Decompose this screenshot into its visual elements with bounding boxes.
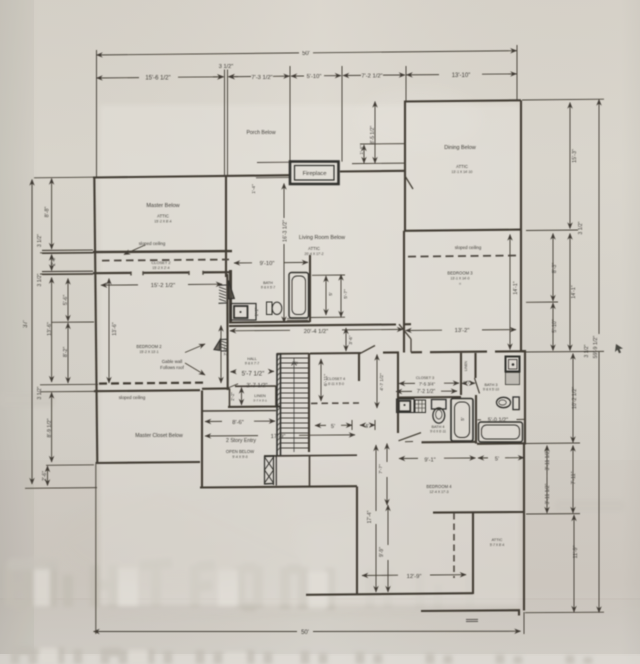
svg-text:7'-2 1/2": 7'-2 1/2" [417, 389, 436, 395]
svg-text:5'-6": 5'-6" [63, 295, 69, 305]
svg-text:BEDROOM 2: BEDROOM 2 [136, 344, 162, 349]
svg-text:1'-7": 1'-7" [463, 380, 472, 385]
svg-text:2'-2": 2'-2" [230, 392, 235, 401]
svg-text:20'-4 X 17'-2: 20'-4 X 17'-2 [304, 252, 323, 256]
svg-text:7'-2": 7'-2" [223, 346, 229, 356]
svg-text:CLOSET 4: CLOSET 4 [327, 377, 345, 381]
svg-text:9'-6 X 5'-10: 9'-6 X 5'-10 [483, 388, 499, 392]
svg-text:13'-1 X 14'-0: 13'-1 X 14'-0 [450, 277, 469, 281]
svg-text:11'-9": 11'-9" [573, 545, 579, 558]
svg-text:2'-6": 2'-6" [51, 256, 57, 266]
svg-text:4'-7 1/2": 4'-7 1/2" [379, 373, 385, 391]
svg-text:3'-7 1/2": 3'-7 1/2" [246, 383, 267, 389]
svg-text:Dining Below: Dining Below [444, 145, 476, 151]
svg-text:9'-6 X 5'-7: 9'-6 X 5'-7 [261, 286, 276, 290]
svg-text:9'-1": 9'-1" [424, 458, 435, 464]
svg-text:ATTIC: ATTIC [492, 538, 503, 542]
svg-text:3'-11 1/2": 3'-11 1/2" [545, 449, 551, 470]
svg-text:15'-2 X 13'-1: 15'-2 X 13'-1 [139, 350, 158, 354]
svg-text:15'-3": 15'-3" [572, 149, 578, 163]
svg-text:17'-9": 17'-9" [271, 434, 286, 440]
svg-text:ATTIC: ATTIC [456, 164, 468, 169]
svg-text:Porch Below: Porch Below [246, 130, 275, 136]
svg-text:15'-2 1/2": 15'-2 1/2" [151, 283, 175, 289]
svg-text:5': 5' [328, 292, 334, 296]
svg-text:ATTIC: ATTIC [157, 214, 169, 219]
svg-text:3'-11 1/2": 3'-11 1/2" [545, 483, 551, 504]
svg-text:BATH: BATH [263, 281, 273, 285]
svg-text:5'-7 1/2": 5'-7 1/2" [242, 370, 265, 377]
svg-text:9'-10": 9'-10" [260, 261, 275, 267]
svg-text:5': 5' [460, 417, 465, 421]
svg-text:17'-4": 17'-4" [367, 510, 373, 523]
svg-text:5'-0 1/2": 5'-0 1/2" [488, 417, 508, 423]
svg-text:sloped ceiling: sloped ceiling [119, 395, 146, 400]
svg-text:1'-4": 1'-4" [251, 184, 257, 194]
svg-text:3 1/2": 3 1/2" [584, 344, 590, 357]
svg-text:13'-6": 13'-6" [47, 322, 53, 336]
svg-text:LINEN: LINEN [254, 393, 266, 398]
svg-text:13'-10": 13'-10" [452, 73, 471, 79]
svg-text:12'-9": 12'-9" [407, 574, 422, 580]
svg-text:9'-9": 9'-9" [379, 547, 385, 557]
svg-text:HALL: HALL [247, 357, 257, 361]
svg-text:15'-2 X 8'-4: 15'-2 X 8'-4 [154, 220, 171, 224]
svg-text:16'-3 1/2": 16'-3 1/2" [283, 220, 289, 242]
svg-text:7'-3 1/2": 7'-3 1/2" [251, 75, 272, 81]
svg-text:8'-5 1/2": 8'-5 1/2" [370, 126, 376, 145]
svg-text:8'-3": 8'-3" [552, 263, 558, 273]
svg-text:8'-8": 8'-8" [45, 207, 51, 218]
svg-text:3 1/2": 3 1/2" [219, 64, 233, 70]
svg-text:Living Room Below: Living Room Below [299, 235, 345, 241]
svg-text:8'-6": 8'-6" [232, 420, 244, 426]
svg-text:8'-2": 8'-2" [63, 347, 69, 357]
svg-text:10'-2 1/2": 10'-2 1/2" [572, 387, 578, 409]
svg-text:3 1/2": 3 1/2" [578, 221, 584, 234]
svg-text:8'-9 1/2": 8'-9 1/2" [47, 418, 53, 437]
svg-text:13'-2": 13'-2" [455, 328, 470, 334]
svg-text:14'-1": 14'-1" [513, 281, 519, 294]
svg-text:Fireplace: Fireplace [303, 171, 327, 177]
svg-text:7'-11": 7'-11" [571, 471, 577, 484]
svg-text:Gable wall: Gable wall [162, 359, 183, 364]
svg-text:6'-11 X 5'-0: 6'-11 X 5'-0 [328, 382, 344, 386]
svg-text:BATH 3: BATH 3 [484, 383, 497, 387]
svg-text:20'-4 1/2": 20'-4 1/2" [304, 329, 328, 335]
svg-text:5'-7": 5'-7" [343, 289, 349, 299]
svg-text:3 1/2": 3 1/2" [37, 273, 43, 286]
svg-text:4': 4' [365, 424, 369, 430]
svg-text:Master Closet Below: Master Closet Below [135, 433, 183, 439]
svg-text:LINEN: LINEN [464, 360, 468, 371]
svg-text:5': 5' [331, 424, 335, 430]
svg-text:13'-6": 13'-6" [112, 322, 118, 335]
svg-text:2'-6": 2'-6" [42, 471, 48, 481]
svg-text:OPEN BELOW: OPEN BELOW [226, 449, 254, 454]
svg-text:5'-10": 5'-10" [552, 319, 558, 332]
svg-text:Master Below: Master Below [146, 203, 179, 209]
svg-text:ATTIC: ATTIC [308, 246, 320, 251]
svg-text:7'-7": 7'-7" [378, 464, 384, 474]
svg-text:9'-4 X 9'-0: 9'-4 X 9'-0 [232, 455, 247, 459]
svg-text:BEDROOM 3: BEDROOM 3 [447, 271, 473, 276]
svg-text:CLOSET 2: CLOSET 2 [151, 260, 171, 265]
svg-text:3'-6": 3'-6" [348, 335, 353, 345]
svg-text:14'-1": 14'-1" [571, 285, 577, 298]
svg-text:BEDROOM 4: BEDROOM 4 [426, 484, 452, 489]
svg-text:9'-6 X 7'-7: 9'-6 X 7'-7 [245, 362, 260, 366]
svg-text:BATH 4: BATH 4 [431, 425, 444, 429]
svg-text:15'-6 1/2": 15'-6 1/2" [145, 76, 170, 82]
svg-text:3'-7 X 3'-1: 3'-7 X 3'-1 [253, 398, 267, 402]
svg-text:5'-7 X 8'-4: 5'-7 X 8'-4 [490, 543, 505, 547]
svg-text:7'-2 1/2": 7'-2 1/2" [361, 73, 382, 79]
svg-text:5'-10": 5'-10" [307, 74, 322, 80]
svg-text:15'-2 X 2'-4: 15'-2 X 2'-4 [152, 266, 169, 270]
svg-text:sloped ceiling: sloped ceiling [139, 241, 166, 246]
svg-text:13'-1 X 14'-10: 13'-1 X 14'-10 [452, 170, 473, 174]
svg-text:6'-11": 6'-11" [323, 374, 329, 386]
svg-text:12'-4 X 17'-3: 12'-4 X 17'-3 [429, 490, 448, 494]
svg-text:3 1/2": 3 1/2" [37, 234, 43, 247]
svg-text:5': 5' [495, 457, 499, 463]
svg-text:CLOSET 3: CLOSET 3 [416, 376, 434, 380]
svg-text:7'-5 3/4": 7'-5 3/4" [419, 382, 436, 387]
svg-text:1'-4": 1'-4" [359, 145, 365, 155]
svg-text:9'-0 X 6'-11: 9'-0 X 6'-11 [430, 430, 446, 434]
svg-text:sloped ceiling: sloped ceiling [455, 245, 482, 250]
svg-text:59'-9 1/2": 59'-9 1/2" [593, 336, 599, 359]
svg-text:DN: DN [292, 360, 298, 365]
svg-text:50': 50' [302, 51, 310, 57]
svg-text:3 1/2": 3 1/2" [37, 386, 43, 399]
svg-text:2 Story Entry: 2 Story Entry [226, 438, 256, 444]
svg-text:1'-1": 1'-1" [254, 307, 259, 316]
svg-text:37': 37' [23, 320, 29, 328]
svg-text:Follows roof: Follows roof [160, 365, 184, 370]
svg-text:50': 50' [301, 630, 309, 636]
